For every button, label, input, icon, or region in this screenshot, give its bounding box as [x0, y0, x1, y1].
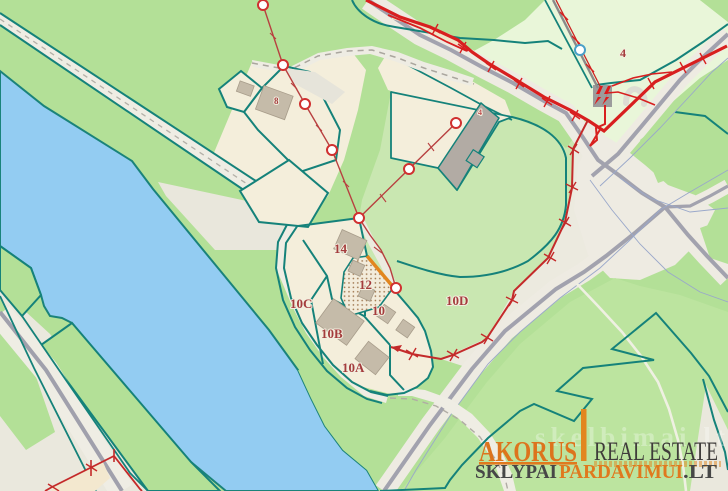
- svg-text:10: 10: [372, 303, 385, 318]
- svg-text:4: 4: [478, 108, 482, 117]
- svg-text:10C: 10C: [290, 296, 312, 311]
- svg-text:SKLYPAI: SKLYPAI: [475, 461, 557, 483]
- svg-text:10A: 10A: [342, 360, 365, 375]
- svg-text:12: 12: [359, 277, 372, 292]
- svg-text:PARDAVIMUI: PARDAVIMUI: [559, 461, 683, 483]
- svg-text:10B: 10B: [321, 326, 343, 341]
- svg-text:8: 8: [274, 96, 279, 106]
- svg-text:10D: 10D: [446, 293, 468, 308]
- svg-text:4: 4: [620, 46, 626, 60]
- svg-text:14: 14: [334, 241, 348, 256]
- svg-text:.LT: .LT: [683, 461, 718, 483]
